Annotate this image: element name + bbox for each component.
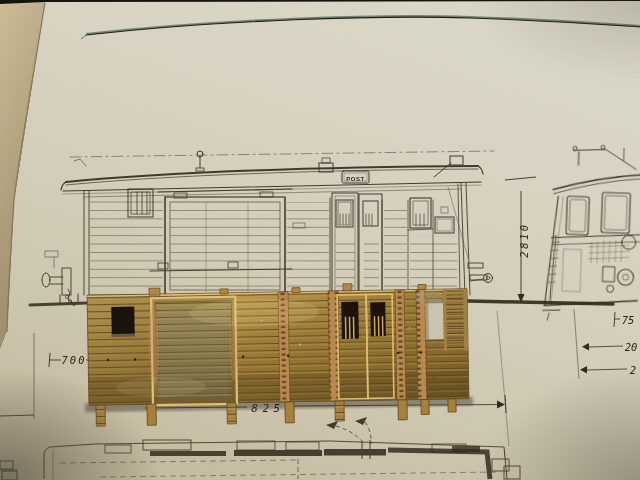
photo-book-technical-drawing: POST [0, 0, 640, 480]
film-grain [0, 0, 640, 480]
photo-canvas: POST [0, 0, 640, 480]
